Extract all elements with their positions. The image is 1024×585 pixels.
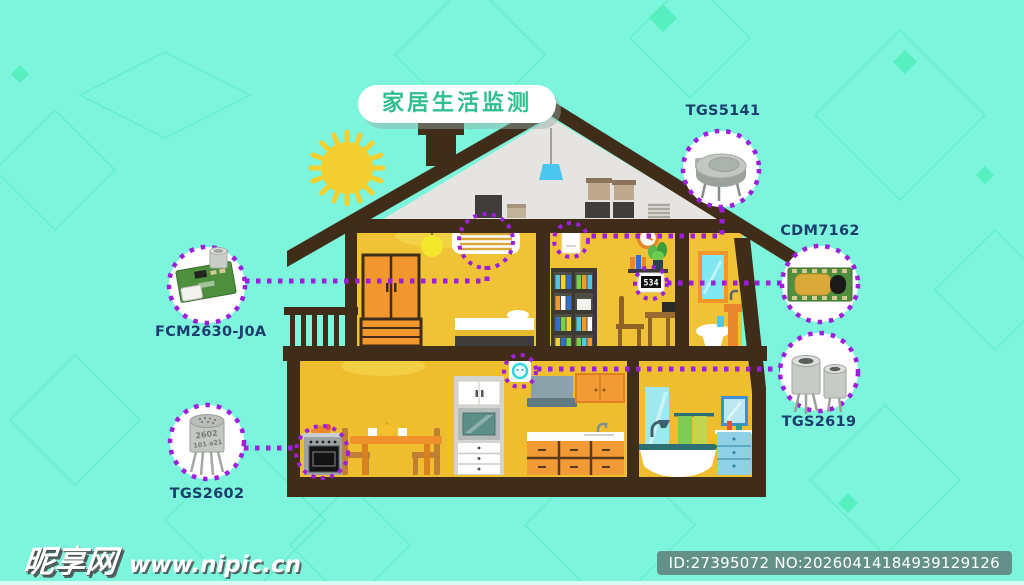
gas-detector <box>509 360 531 382</box>
label-tgs2619: TGS2619 <box>779 414 859 430</box>
watermark: 昵享网 www.nipic.cn <box>24 536 301 581</box>
attic-lamp <box>539 164 563 180</box>
lower-cabinets <box>527 441 624 475</box>
mirror <box>721 396 748 426</box>
bedroom-lamp <box>421 235 443 257</box>
ground-floor <box>287 477 766 497</box>
attic-floor <box>345 219 742 233</box>
sensor-fcm2630 <box>169 247 245 323</box>
bookshelf <box>551 268 597 352</box>
label-cdm7162: CDM7162 <box>780 223 860 239</box>
lower-left-wall <box>287 352 300 477</box>
bottom-strip <box>0 581 1024 585</box>
mid-floor <box>283 346 767 361</box>
co2-monitor: 534 <box>638 273 664 292</box>
sun-icon <box>311 132 383 204</box>
towel-yellow <box>694 416 707 445</box>
sensor-tgs2602: 2602 101 a21 <box>170 405 244 479</box>
range-hood <box>527 376 577 407</box>
image-id-badge: ID:27395072 NO:20260414184939129126 <box>657 551 1012 575</box>
laptop <box>662 302 675 312</box>
sensor-cdm7162 <box>782 246 858 322</box>
page-title: 家居生活监测 <box>358 85 556 123</box>
label-tgs5141: TGS5141 <box>683 103 763 119</box>
hand-towel <box>717 316 724 327</box>
kitchen-tall-unit <box>454 376 504 475</box>
wardrobe <box>361 255 421 346</box>
co2-display-reading: 534 <box>643 279 658 289</box>
watermark-site-name: 昵享网 <box>22 536 120 581</box>
poster-canvas: 534 <box>0 0 1024 585</box>
balcony <box>284 307 358 346</box>
sensor-tgs2619 <box>780 333 858 414</box>
wall-bedroom-study <box>536 233 550 346</box>
pillow <box>507 310 529 320</box>
towel-green <box>678 416 692 447</box>
cdm7162-sensor-image <box>788 268 852 301</box>
sensor-tgs5141 <box>683 131 759 207</box>
watermark-site-url: www.nipic.cn <box>129 552 301 578</box>
wall-study-bath <box>675 233 689 346</box>
label-fcm2630: FCM2630-J0A <box>155 324 260 340</box>
wall-kitchen-bath <box>627 361 639 477</box>
label-tgs2602: TGS2602 <box>167 486 247 502</box>
upper-cabinets <box>576 374 624 402</box>
